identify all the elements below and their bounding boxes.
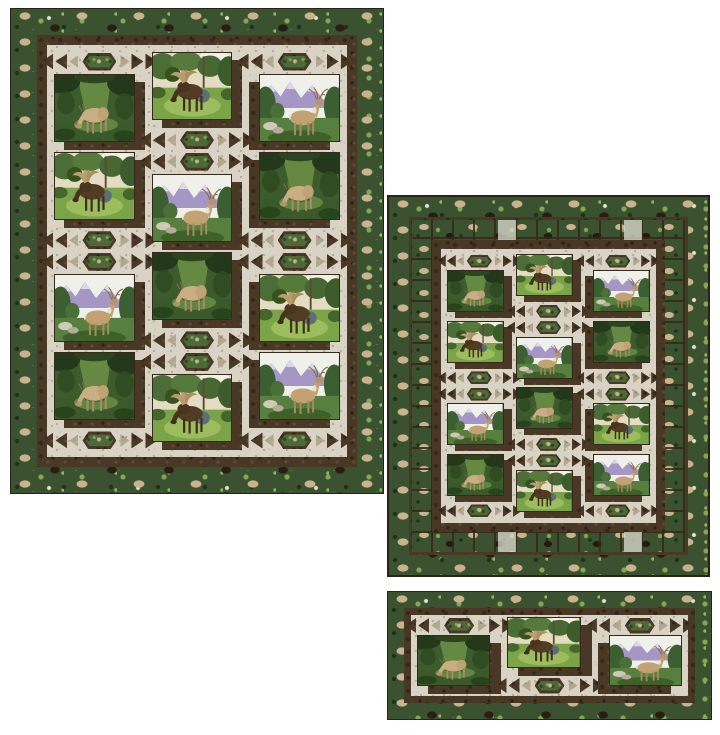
panel-image-elk [417, 635, 490, 686]
flying-geese-triangle [251, 254, 263, 270]
medallion-hexagon [82, 231, 116, 249]
medallion-hexagon [180, 131, 214, 149]
panel-image-moose [152, 52, 233, 120]
quilt-border-binding [387, 195, 710, 577]
quilt-panel-elk [447, 454, 512, 502]
arrow-motif [585, 371, 650, 385]
flying-geese-triangle [437, 388, 446, 400]
flying-geese-triangle [251, 432, 263, 448]
quilt-panel-buck [54, 274, 145, 350]
flying-geese-triangle [595, 373, 602, 383]
medallion-center [281, 234, 309, 246]
flying-geese-triangle [641, 372, 650, 384]
medallion-center [447, 621, 471, 631]
panel-image-moose [516, 470, 573, 512]
medallion-hexagon [180, 331, 214, 349]
flying-geese-triangle [516, 305, 525, 317]
flying-geese-triangle [526, 439, 533, 449]
medallion-center [607, 506, 628, 515]
flying-geese-triangle [572, 305, 581, 317]
flying-geese-triangle [153, 132, 165, 148]
medallion-center [85, 234, 113, 246]
flying-geese-triangle [218, 355, 227, 368]
flying-geese-triangle [683, 618, 694, 633]
flying-geese-triangle [659, 620, 668, 632]
flying-geese-triangle [516, 438, 525, 450]
medallion-center [85, 56, 113, 68]
arrow-motif [249, 431, 340, 450]
medallion-hexagon [536, 321, 561, 334]
medallion-hexagon [278, 231, 312, 249]
arrow-motif [447, 504, 512, 518]
quilt-panel-buck [249, 74, 340, 150]
flying-geese-triangle [120, 255, 129, 268]
flying-geese-triangle [131, 432, 143, 448]
flying-geese-triangle [41, 54, 53, 70]
quilt-panel-buck [585, 270, 650, 318]
flying-geese-triangle [69, 255, 78, 268]
panel-image-moose [593, 403, 650, 445]
flying-geese-triangle [120, 234, 129, 247]
arrow-motif [447, 254, 512, 268]
flying-geese-triangle [633, 373, 640, 383]
flying-geese-triangle [153, 332, 165, 348]
flying-geese-triangle [229, 354, 241, 370]
flying-geese-triangle [489, 618, 500, 633]
flying-geese-triangle [670, 618, 681, 633]
flying-geese-triangle [55, 432, 67, 448]
quilt-center [441, 249, 656, 523]
medallion-hexagon [605, 371, 630, 384]
flying-geese-triangle [585, 255, 594, 267]
medallion-center [628, 621, 652, 631]
medallion-hexagon [278, 431, 312, 449]
flying-geese-triangle [327, 432, 339, 448]
flying-geese-triangle [69, 434, 78, 447]
flying-geese-triangle [641, 388, 650, 400]
quilt-panel-moose [585, 403, 650, 451]
medallion-center [538, 307, 559, 316]
flying-geese-triangle [41, 232, 53, 248]
medallion-center [469, 390, 490, 399]
quilt-border-green-print [388, 592, 711, 719]
flying-geese-triangle [218, 134, 227, 147]
quilt-border-pieced-squares [412, 220, 685, 552]
medallion-hexagon [444, 618, 474, 634]
arrow-motif [516, 321, 581, 335]
medallion-center [538, 681, 562, 691]
panel-image-buck [447, 403, 504, 445]
flying-geese-triangle [316, 234, 325, 247]
panel-image-buck [259, 74, 340, 142]
panel-image-buck [593, 454, 650, 496]
quilt-panel-elk [249, 152, 340, 228]
flying-geese-triangle [580, 678, 591, 693]
quilt-panel-moose [516, 254, 581, 302]
flying-geese-triangle [120, 55, 129, 68]
quilt-border-inner-brown [37, 35, 357, 467]
flying-geese-triangle [572, 438, 581, 450]
flying-geese-triangle [265, 234, 274, 247]
quilt-panel-moose [447, 321, 512, 369]
flying-geese-triangle [55, 232, 67, 248]
flying-geese-triangle [585, 372, 594, 384]
flying-geese-triangle [229, 132, 241, 148]
flying-geese-triangle [641, 255, 650, 267]
quilt-border-inner-brown [432, 240, 665, 532]
flying-geese-triangle [131, 232, 143, 248]
medallion-center [607, 390, 628, 399]
medallion-center [85, 256, 113, 268]
quilt-set-canvas [0, 0, 720, 735]
flying-geese-triangle [585, 388, 594, 400]
arrow-motif [152, 152, 243, 171]
quilt-panel-moose [507, 617, 591, 676]
flying-geese-triangle [405, 618, 416, 633]
quilt-border-binding [10, 8, 384, 494]
flying-geese-triangle [503, 255, 512, 267]
quilt-panel-elk [447, 270, 512, 318]
flying-geese-triangle [526, 456, 533, 466]
flying-geese-triangle [503, 388, 512, 400]
panel-image-moose [507, 617, 580, 668]
flying-geese-triangle [229, 154, 241, 170]
medallion-center [538, 456, 559, 465]
medallion-hexagon [467, 371, 492, 384]
flying-geese-triangle [478, 620, 487, 632]
flying-geese-triangle [503, 505, 512, 517]
quilt-border-green-print [389, 197, 708, 575]
flying-geese-triangle [447, 505, 456, 517]
arrow-motif [516, 454, 581, 468]
medallion-hexagon [535, 678, 565, 694]
quilt-panel-buck [249, 352, 340, 428]
medallion-center [607, 257, 628, 266]
medallion-center [183, 334, 211, 346]
arrow-motif [447, 371, 512, 385]
quilt-panel-elk [417, 635, 501, 694]
medallion-hexagon [467, 388, 492, 401]
flying-geese-triangle [69, 55, 78, 68]
panel-image-elk [447, 270, 504, 312]
flying-geese-triangle [437, 505, 446, 517]
medallion-center [469, 257, 490, 266]
flying-geese-triangle [564, 306, 571, 316]
quilt-panel-buck [447, 403, 512, 451]
quilt-column [249, 52, 340, 450]
arrow-motif [516, 437, 581, 451]
quilt-panel-moose [249, 274, 340, 350]
medallion-center [281, 256, 309, 268]
flying-geese-triangle [595, 389, 602, 399]
medallion-center [281, 56, 309, 68]
flying-geese-triangle [316, 55, 325, 68]
medallion-hexagon [605, 388, 630, 401]
medallion-center [538, 323, 559, 332]
flying-geese-triangle [265, 434, 274, 447]
flying-geese-triangle [316, 434, 325, 447]
flying-geese-triangle [564, 456, 571, 466]
flying-geese-triangle [651, 388, 660, 400]
quilt-column [417, 617, 501, 694]
medallion-hexagon [82, 431, 116, 449]
medallion-hexagon [82, 53, 116, 71]
panel-image-elk [593, 321, 650, 363]
flying-geese-triangle [251, 54, 263, 70]
quilt-column [54, 52, 145, 450]
flying-geese-triangle [651, 505, 660, 517]
quilt-column [598, 617, 682, 694]
panel-image-buck [54, 274, 135, 342]
quilt-border-inner-brown [404, 608, 695, 703]
flying-geese-triangle [265, 255, 274, 268]
quilt-panel-elk [152, 252, 243, 328]
panel-image-elk [152, 252, 233, 320]
panel-image-buck [259, 352, 340, 420]
arrow-motif [54, 431, 145, 450]
quilt-runner [387, 591, 712, 720]
arrow-motif [249, 252, 340, 271]
quilt-panel-moose [152, 374, 243, 450]
flying-geese-triangle [327, 232, 339, 248]
quilt-column [152, 52, 243, 450]
quilt-border-green-print [11, 9, 383, 493]
medallion-hexagon [536, 438, 561, 451]
flying-geese-triangle [633, 256, 640, 266]
flying-geese-triangle [437, 372, 446, 384]
medallion-hexagon [467, 255, 492, 268]
medallion-center [469, 373, 490, 382]
quilt-panel-elk [54, 352, 145, 428]
arrow-motif [447, 387, 512, 401]
panel-image-elk [54, 352, 135, 420]
panel-image-elk [447, 454, 504, 496]
flying-geese-triangle [341, 232, 353, 248]
flying-geese-triangle [522, 680, 531, 692]
flying-geese-triangle [131, 254, 143, 270]
flying-geese-triangle [569, 680, 578, 692]
flying-geese-triangle [495, 256, 502, 266]
medallion-hexagon [536, 454, 561, 467]
quilt-panel-buck [598, 635, 682, 694]
flying-geese-triangle [633, 389, 640, 399]
panel-image-elk [54, 74, 135, 142]
flying-geese-triangle [503, 372, 512, 384]
quilt-lap [387, 195, 710, 577]
quilt-border-binding [387, 591, 712, 720]
medallion-center [183, 156, 211, 168]
arrow-motif [152, 331, 243, 350]
arrow-motif [585, 254, 650, 268]
medallion-center [85, 434, 113, 446]
panel-image-elk [259, 152, 340, 220]
quilt-panel-buck [152, 174, 243, 250]
arrow-motif [516, 304, 581, 318]
quilt-panel-moose [516, 470, 581, 518]
flying-geese-triangle [229, 332, 241, 348]
flying-geese-triangle [651, 372, 660, 384]
flying-geese-triangle [55, 254, 67, 270]
medallion-center [183, 356, 211, 368]
arrow-motif [507, 677, 591, 694]
flying-geese-triangle [218, 155, 227, 168]
flying-geese-triangle [457, 373, 464, 383]
arrow-motif [417, 617, 501, 634]
flying-geese-triangle [251, 232, 263, 248]
flying-geese-triangle [316, 255, 325, 268]
flying-geese-triangle [153, 354, 165, 370]
flying-geese-triangle [265, 55, 274, 68]
flying-geese-triangle [218, 334, 227, 347]
flying-geese-triangle [418, 618, 429, 633]
arrow-motif [585, 504, 650, 518]
flying-geese-triangle [167, 134, 176, 147]
panel-image-buck [152, 174, 233, 242]
panel-image-buck [593, 270, 650, 312]
flying-geese-triangle [509, 678, 520, 693]
medallion-center [183, 134, 211, 146]
flying-geese-triangle [526, 306, 533, 316]
medallion-center [469, 506, 490, 515]
quilt-panel-elk [54, 74, 145, 150]
flying-geese-triangle [447, 255, 456, 267]
medallion-center [538, 440, 559, 449]
flying-geese-triangle [516, 322, 525, 334]
arrow-motif [598, 617, 682, 634]
panel-image-buck [609, 635, 682, 686]
quilt-border-line-brown [409, 217, 688, 555]
arrow-motif [249, 231, 340, 250]
flying-geese-triangle [495, 373, 502, 383]
quilt-panel-elk [585, 321, 650, 369]
quilt-large [10, 8, 384, 494]
panel-image-buck [516, 337, 573, 379]
flying-geese-triangle [633, 506, 640, 516]
flying-geese-triangle [495, 506, 502, 516]
flying-geese-triangle [572, 322, 581, 334]
flying-geese-triangle [131, 54, 143, 70]
medallion-hexagon [536, 305, 561, 318]
flying-geese-triangle [153, 154, 165, 170]
flying-geese-triangle [595, 506, 602, 516]
quilt-panel-buck [585, 454, 650, 502]
arrow-motif [54, 52, 145, 71]
quilt-center [411, 615, 688, 696]
flying-geese-triangle [564, 323, 571, 333]
flying-geese-triangle [41, 432, 53, 448]
medallion-hexagon [278, 53, 312, 71]
flying-geese-triangle [167, 334, 176, 347]
flying-geese-triangle [341, 432, 353, 448]
quilt-panel-elk [516, 387, 581, 435]
flying-geese-triangle [651, 255, 660, 267]
flying-geese-triangle [55, 54, 67, 70]
flying-geese-triangle [327, 54, 339, 70]
arrow-motif [54, 252, 145, 271]
panel-image-moose [447, 321, 504, 363]
medallion-hexagon [467, 504, 492, 517]
flying-geese-triangle [457, 256, 464, 266]
quilt-column [447, 254, 512, 518]
flying-geese-triangle [599, 618, 610, 633]
flying-geese-triangle [447, 388, 456, 400]
panel-image-elk [516, 387, 573, 429]
panel-image-moose [259, 274, 340, 342]
flying-geese-triangle [167, 355, 176, 368]
flying-geese-triangle [457, 389, 464, 399]
flying-geese-triangle [612, 620, 621, 632]
medallion-center [281, 434, 309, 446]
flying-geese-triangle [437, 255, 446, 267]
quilt-center [47, 45, 347, 457]
medallion-hexagon [278, 253, 312, 271]
medallion-hexagon [605, 255, 630, 268]
medallion-hexagon [605, 504, 630, 517]
arrow-motif [585, 387, 650, 401]
flying-geese-triangle [595, 256, 602, 266]
flying-geese-triangle [327, 254, 339, 270]
medallion-center [607, 373, 628, 382]
panel-image-moose [516, 254, 573, 296]
flying-geese-triangle [585, 505, 594, 517]
quilt-column [507, 617, 591, 694]
flying-geese-triangle [167, 155, 176, 168]
flying-geese-triangle [564, 439, 571, 449]
flying-geese-triangle [457, 506, 464, 516]
flying-geese-triangle [341, 254, 353, 270]
flying-geese-triangle [341, 54, 353, 70]
quilt-column [585, 254, 650, 518]
flying-geese-triangle [120, 434, 129, 447]
flying-geese-triangle [69, 234, 78, 247]
flying-geese-triangle [572, 455, 581, 467]
quilt-panel-moose [54, 152, 145, 228]
flying-geese-triangle [641, 505, 650, 517]
arrow-motif [152, 131, 243, 150]
flying-geese-triangle [41, 254, 53, 270]
medallion-hexagon [625, 618, 655, 634]
panel-image-moose [152, 374, 233, 442]
quilt-column [516, 254, 581, 518]
quilt-panel-moose [152, 52, 243, 128]
arrow-motif [152, 352, 243, 371]
flying-geese-triangle [526, 323, 533, 333]
flying-geese-triangle [431, 620, 440, 632]
medallion-hexagon [82, 253, 116, 271]
arrow-motif [54, 231, 145, 250]
flying-geese-triangle [447, 372, 456, 384]
panel-image-moose [54, 152, 135, 220]
quilt-panel-buck [516, 337, 581, 385]
medallion-hexagon [180, 353, 214, 371]
arrow-motif [249, 52, 340, 71]
flying-geese-triangle [495, 389, 502, 399]
flying-geese-triangle [516, 455, 525, 467]
medallion-hexagon [180, 153, 214, 171]
